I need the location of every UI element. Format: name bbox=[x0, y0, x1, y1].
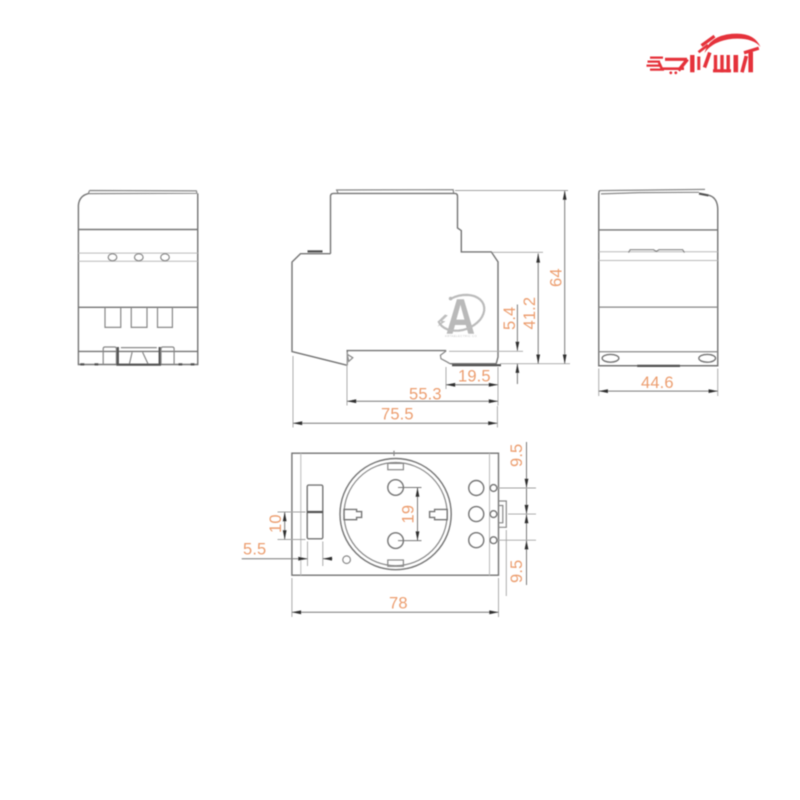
svg-text:64: 64 bbox=[548, 268, 566, 287]
svg-text:9.5: 9.5 bbox=[508, 560, 526, 583]
svg-text:44.6: 44.6 bbox=[641, 374, 674, 392]
svg-text:19: 19 bbox=[400, 505, 418, 524]
svg-text:55.3: 55.3 bbox=[409, 386, 442, 404]
svg-text:ARTAELECTRIC CO: ARTAELECTRIC CO bbox=[445, 334, 478, 338]
svg-text:5.5: 5.5 bbox=[243, 541, 266, 559]
svg-text:5.4: 5.4 bbox=[501, 307, 519, 330]
svg-text:10: 10 bbox=[267, 514, 285, 533]
svg-text:19.5: 19.5 bbox=[458, 368, 491, 386]
svg-text:75.5: 75.5 bbox=[381, 406, 414, 424]
svg-text:78: 78 bbox=[389, 595, 408, 613]
svg-text:9.5: 9.5 bbox=[508, 444, 526, 467]
svg-text:41.2: 41.2 bbox=[521, 297, 539, 330]
